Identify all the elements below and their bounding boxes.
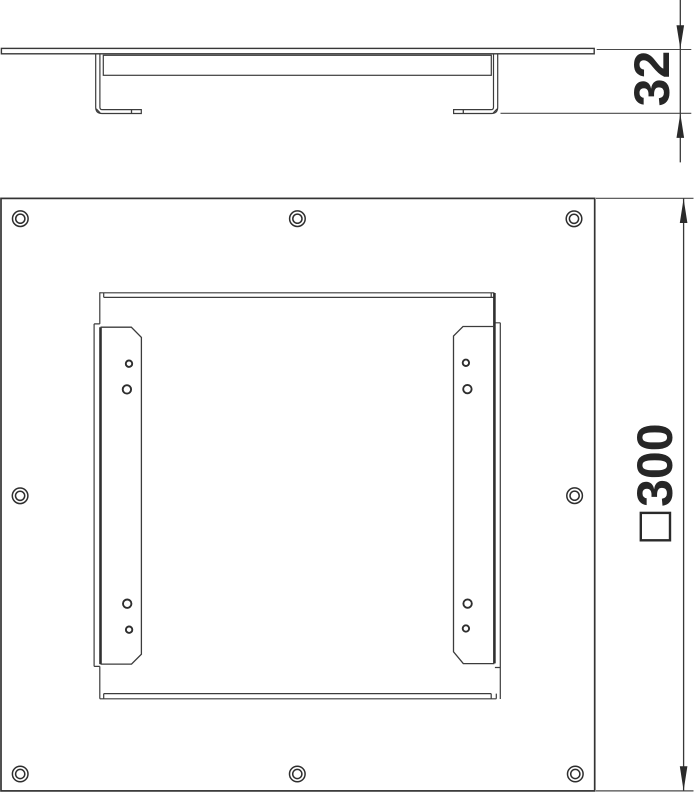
svg-text:300: 300 bbox=[627, 423, 683, 506]
svg-text:32: 32 bbox=[624, 51, 680, 107]
